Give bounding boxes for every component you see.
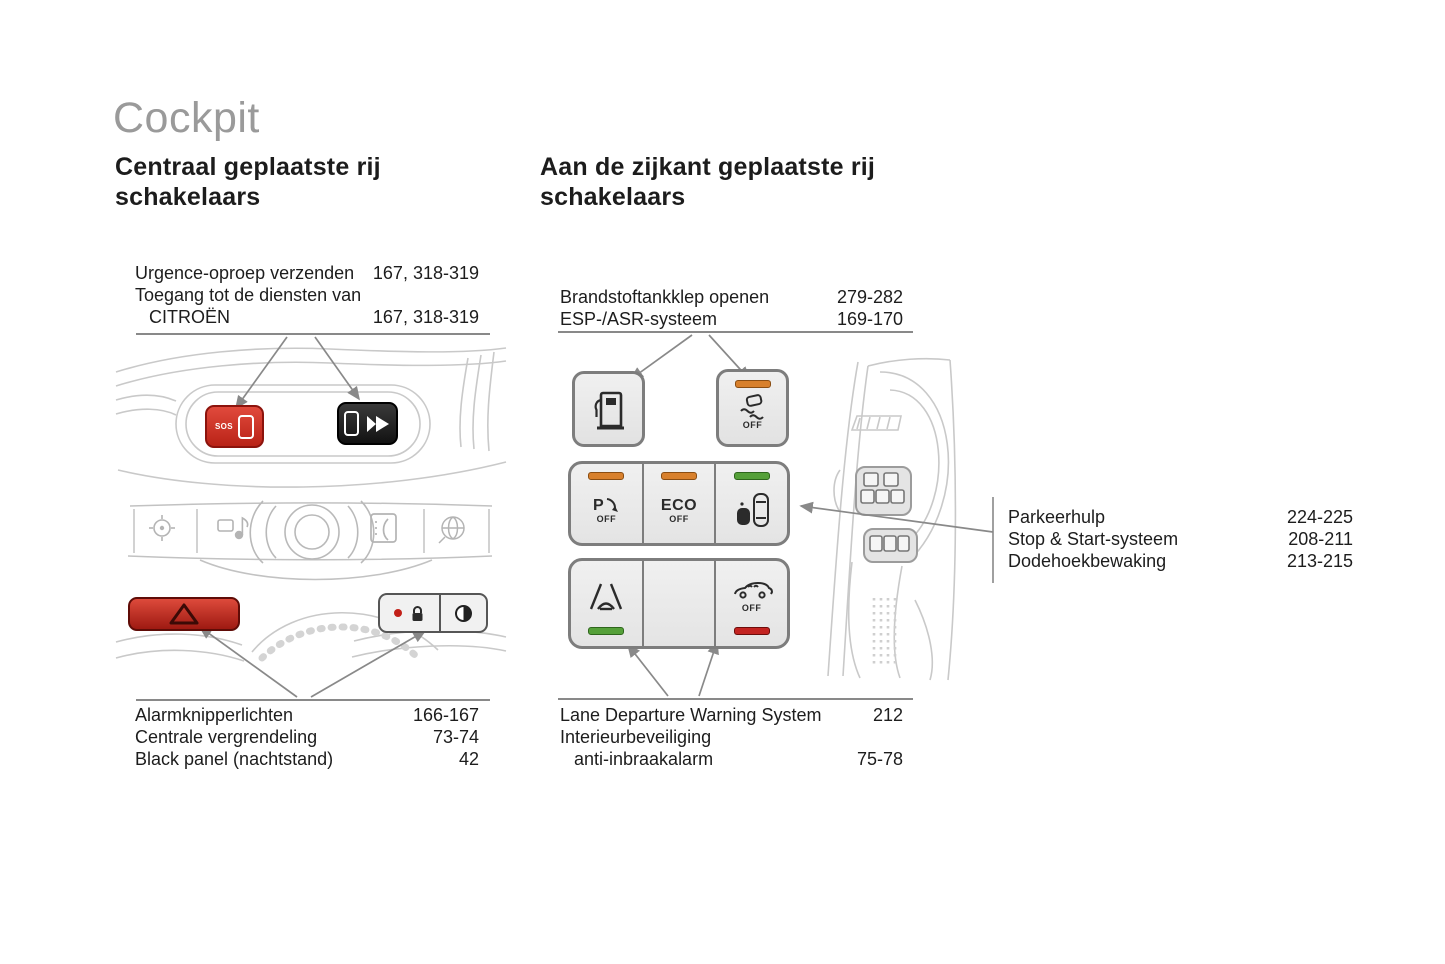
interior-protection-off-icon xyxy=(731,579,773,601)
ref-pages: 167, 318-319 xyxy=(363,306,479,328)
sos-button-label: SOS xyxy=(215,422,233,431)
ref-label: Lane Departure Warning System xyxy=(560,704,821,726)
indicator-bar xyxy=(734,627,770,635)
ref-row: anti-inbraakalarm 75-78 xyxy=(560,748,903,770)
side-dash-sketch xyxy=(828,359,955,680)
ref-label: Toegang tot de diensten van xyxy=(135,284,361,306)
right-section-heading: Aan de zijkant geplaatste rij schakelaar… xyxy=(540,152,875,212)
right-bottom-ref-list: Lane Departure Warning System 212 Interi… xyxy=(560,704,903,770)
ref-pages: 169-170 xyxy=(827,308,903,330)
nav-crosshair-icon xyxy=(149,515,175,541)
left-top-ref-list: Urgence-oproep verzenden 167, 318-319 To… xyxy=(135,262,479,328)
ref-row: Black panel (nachtstand) 42 xyxy=(135,748,479,770)
side-switch-panel-upper xyxy=(856,467,911,515)
ref-pages: 166-167 xyxy=(403,704,479,726)
ref-row: Brandstoftankklep openen 279-282 xyxy=(560,286,903,308)
ref-row: CITROËN 167, 318-319 xyxy=(135,306,479,328)
sos-button: SOS xyxy=(205,405,264,448)
lane-departure-icon xyxy=(585,579,627,615)
ref-pages: 212 xyxy=(863,704,903,726)
ref-label: Stop & Start-systeem xyxy=(1008,528,1178,550)
black-panel-icon xyxy=(454,604,473,623)
hazard-triangle-icon xyxy=(169,602,199,626)
indicator-bar xyxy=(588,627,624,635)
ds-logo-icon xyxy=(365,413,391,435)
eco-off-button: ECO OFF xyxy=(642,464,715,543)
interior-off-label: OFF xyxy=(742,603,762,613)
locking-led-icon xyxy=(394,609,402,617)
central-locking-button xyxy=(380,595,441,631)
ref-label: Black panel (nachtstand) xyxy=(135,748,333,770)
ref-row: Lane Departure Warning System 212 xyxy=(560,704,903,726)
ref-label: Parkeerhulp xyxy=(1008,506,1105,528)
indicator-bar xyxy=(734,472,770,480)
central-locking-panel xyxy=(378,593,488,633)
citroen-services-button xyxy=(337,402,398,445)
indicator-bar xyxy=(588,472,624,480)
ref-pages: 279-282 xyxy=(827,286,903,308)
reference-rules xyxy=(136,332,913,700)
left-section-heading: Centraal geplaatste rij schakelaars xyxy=(115,152,381,212)
ref-label: Centrale vergrendeling xyxy=(135,726,317,748)
ref-row: Toegang tot de diensten van xyxy=(135,284,479,306)
ref-pages xyxy=(469,284,479,306)
hazard-warning-button xyxy=(128,597,240,631)
ref-row: Stop & Start-systeem 208-211 xyxy=(1008,528,1353,550)
ref-row: ESP-/ASR-systeem 169-170 xyxy=(560,308,903,330)
black-panel-button xyxy=(441,595,486,631)
screen-icon xyxy=(344,411,359,436)
esp-off-button: OFF xyxy=(716,369,789,447)
ref-label: Interieurbeveiliging xyxy=(560,726,711,748)
ref-row: Alarmknipperlichten 166-167 xyxy=(135,704,479,726)
ref-label: CITROËN xyxy=(135,306,230,328)
ref-pages: 213-215 xyxy=(1277,550,1353,572)
blind-spot-button xyxy=(714,464,787,543)
fuel-flap-button xyxy=(572,371,645,447)
indicator-bar xyxy=(735,380,771,388)
blind-spot-icon xyxy=(733,489,771,531)
sos-phone-icon xyxy=(238,415,254,439)
ref-row: Urgence-oproep verzenden 167, 318-319 xyxy=(135,262,479,284)
parking-sensors-off-button: P OFF xyxy=(571,464,642,543)
ref-row: Dodehoekbewaking 213-215 xyxy=(1008,550,1353,572)
ref-pages: 73-74 xyxy=(423,726,479,748)
interior-protection-off-button: OFF xyxy=(714,561,787,646)
manual-page: Cockpit Centraal geplaatste rij schakela… xyxy=(0,0,1445,964)
ref-pages: 208-211 xyxy=(1278,528,1353,550)
ref-pages: 75-78 xyxy=(847,748,903,770)
ref-row: Centrale vergrendeling 73-74 xyxy=(135,726,479,748)
ref-label: Alarmknipperlichten xyxy=(135,704,293,726)
side-ref-list: Parkeerhulp 224-225 Stop & Start-systeem… xyxy=(1008,506,1353,572)
media-icon xyxy=(218,518,248,538)
blank-switch xyxy=(642,561,715,646)
ref-pages: 42 xyxy=(449,748,479,770)
lock-icon xyxy=(410,605,425,622)
indicator-bar xyxy=(661,472,697,480)
overhead-console-sketch xyxy=(116,348,506,487)
ref-row: Interieurbeveiliging xyxy=(560,726,903,748)
middle-switch-strip: P OFF ECO OFF xyxy=(568,461,790,546)
ref-pages: 167, 318-319 xyxy=(363,262,479,284)
ref-label: Dodehoekbewaking xyxy=(1008,550,1166,572)
ref-label: Urgence-oproep verzenden xyxy=(135,262,354,284)
esp-off-icon xyxy=(736,394,770,420)
ref-label: Brandstoftankklep openen xyxy=(560,286,769,308)
eco-off-label: OFF xyxy=(669,514,689,524)
facia-strip-sketch xyxy=(128,503,492,580)
park-assist-off-icon xyxy=(605,497,620,514)
fuel-flap-icon xyxy=(590,387,628,431)
internet-globe-icon xyxy=(439,517,464,543)
ref-pages: 224-225 xyxy=(1277,506,1353,528)
lane-departure-button xyxy=(571,561,642,646)
esp-off-label: OFF xyxy=(743,420,763,430)
bottom-switch-strip: OFF xyxy=(568,558,790,649)
left-bottom-ref-list: Alarmknipperlichten 166-167 Centrale ver… xyxy=(135,704,479,770)
side-switch-panel-lower xyxy=(864,529,917,562)
volume-knob-icon xyxy=(250,501,374,563)
right-top-ref-list: Brandstoftankklep openen 279-282 ESP-/AS… xyxy=(560,286,903,330)
ref-label: ESP-/ASR-systeem xyxy=(560,308,717,330)
park-off-label: OFF xyxy=(597,514,617,524)
phone-icon xyxy=(371,514,396,542)
ref-label: anti-inbraakalarm xyxy=(560,748,713,770)
page-title: Cockpit xyxy=(113,94,260,143)
ref-row: Parkeerhulp 224-225 xyxy=(1008,506,1353,528)
eco-label: ECO xyxy=(661,498,697,514)
ref-pages xyxy=(893,726,903,748)
park-letter: P xyxy=(593,499,604,513)
